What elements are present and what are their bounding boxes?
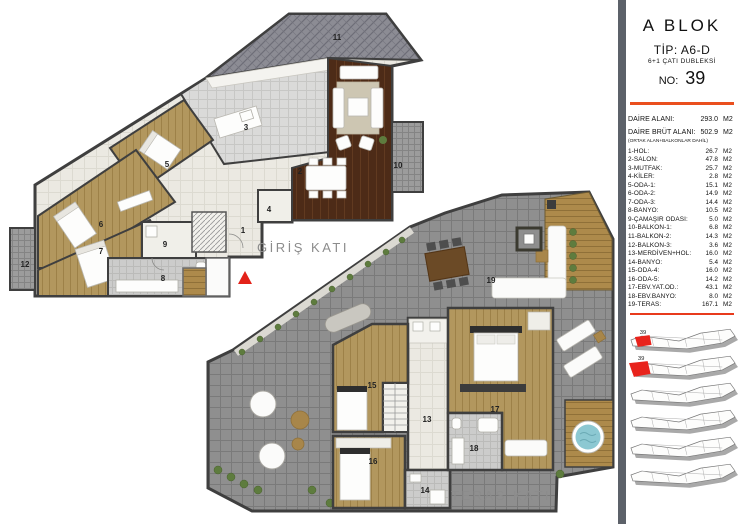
keyplan-thumbnail: [628, 381, 738, 407]
bath-vanity: [116, 280, 178, 292]
room-number-8: 8: [161, 274, 166, 283]
keyplan-thumbnail: [628, 462, 738, 488]
room-row: 9-ÇAMAŞIR ODASI:5.0M2: [628, 216, 736, 225]
l-sofa: [492, 278, 566, 298]
no-label: NO:: [659, 75, 679, 87]
area-label: DAİRE BRÜT ALANI:: [628, 126, 698, 139]
dining-set: [306, 158, 346, 198]
net-area-row: DAİRE ALANI: 293.0 M2: [628, 113, 736, 126]
area-label: DAİRE ALANI:: [628, 113, 698, 126]
room-number-10: 10: [394, 161, 403, 170]
room-number-12: 12: [21, 260, 30, 269]
ground-floor-plan: 1 2 3 4 5 6 7 8 9 10 11 12 GİRİŞ KATI: [10, 14, 423, 296]
room-row: 3-MUTFAK:25.7M2: [628, 165, 736, 174]
stairs: [383, 383, 408, 432]
sofa: [505, 440, 547, 456]
side-table: [536, 250, 548, 262]
room-row: 19-TERAS:167.1M2: [628, 301, 736, 310]
room-number-2: 2: [298, 167, 303, 176]
appliance: [430, 322, 440, 331]
room-number-13: 13: [423, 415, 432, 424]
room-number-18: 18: [470, 444, 479, 453]
room-row: 14-BANYO:5.4M2: [628, 259, 736, 268]
stairs: [192, 212, 226, 252]
room-balkon-1: [392, 122, 423, 192]
area-note: (ORTAK ALAN+BALKONLAR DAHİL): [628, 139, 736, 145]
floorplan-sheet: 1 2 3 4 5 6 7 8 9 10 11 12 GİRİŞ KATI: [0, 0, 740, 524]
room-row: 10-BALKON-1:6.8M2: [628, 224, 736, 233]
room-balkon-3: [10, 228, 35, 290]
room-row: 17-EBV.YAT.OD.:43.1M2: [628, 284, 736, 293]
panel-divider-strip: [618, 0, 626, 524]
room-kiler: [258, 190, 292, 222]
room-row: 11-BALKON-2:14.3M2: [628, 233, 736, 242]
room-number-4: 4: [267, 205, 272, 214]
room-row: 16-ODA-5:14.2M2: [628, 276, 736, 285]
room-number-15: 15: [368, 381, 377, 390]
area-value: 293.0: [698, 113, 718, 126]
room-row: 6-ODA-2:14.9M2: [628, 190, 736, 199]
room-row: 1-HOL:26.7M2: [628, 148, 736, 157]
room-number-5: 5: [165, 160, 170, 169]
wardrobe: [336, 438, 391, 448]
entry-steps: [183, 268, 206, 296]
room-row: 8-BANYO:10.5M2: [628, 207, 736, 216]
ground-floor-label: GİRİŞ KATI: [257, 240, 349, 255]
hot-tub: [572, 421, 604, 453]
room-number-6: 6: [99, 220, 104, 229]
entrance-arrow-icon: [238, 271, 252, 284]
sink: [410, 474, 421, 482]
unit-highlight: [635, 335, 652, 347]
area-value: 502.9: [698, 126, 718, 139]
keyplan-thumbnail-highlighted: 39: [628, 354, 738, 380]
unit-number: 39: [685, 68, 705, 89]
toilet: [452, 418, 461, 429]
room-number-9: 9: [163, 240, 168, 249]
room-number-1: 1: [241, 226, 246, 235]
entry-landing: [206, 258, 229, 296]
terrace-floor-label: TERAS KATI: [451, 488, 551, 503]
keyplan-unit-label: 39: [640, 330, 647, 336]
vanity: [452, 438, 464, 464]
room-row: 12-BALKON-3:3.6M2: [628, 242, 736, 251]
room-number-14: 14: [421, 486, 430, 495]
room-row: 5-ODA-1:15.1M2: [628, 182, 736, 191]
divider-rule-bottom: [630, 313, 734, 316]
room-number-19: 19: [487, 276, 496, 285]
keyplan-thumbnail: [628, 408, 738, 434]
room-area-table: 1-HOL:26.7M2 2-SALON:47.8M2 3-MUTFAK:25.…: [628, 148, 736, 310]
room-number-11: 11: [333, 33, 342, 42]
divider-rule-top: [630, 102, 734, 105]
type-label: TİP: A6-D: [628, 43, 736, 57]
shower: [430, 490, 445, 504]
gross-area-row: DAİRE BRÜT ALANI: 502.9 M2: [628, 126, 736, 139]
room-row: 18-EBV.BANYO:8.0M2: [628, 293, 736, 302]
keyplan-thumbnail-highlighted: 39: [628, 327, 738, 353]
room-number-16: 16: [369, 457, 378, 466]
bathtub: [478, 418, 498, 432]
room-row: 2-SALON:47.8M2: [628, 156, 736, 165]
fireplace: [547, 200, 556, 209]
appliance: [413, 322, 423, 331]
bed: [337, 386, 367, 430]
subtype-label: 6+1 ÇATI DUBLEKSİ: [628, 58, 736, 65]
area-unit: M2: [723, 113, 736, 126]
area-unit: M2: [723, 126, 736, 139]
washer: [146, 226, 157, 237]
fire-pit: [517, 228, 541, 250]
keyplan-thumbnail: [628, 435, 738, 461]
room-row: 15-ODA-4:16.0M2: [628, 267, 736, 276]
room-number-17: 17: [491, 405, 500, 414]
room-number-7: 7: [99, 247, 104, 256]
block-title: A BLOK: [628, 16, 736, 36]
wardrobe: [528, 312, 550, 330]
keyplan-unit-label: 39: [638, 357, 645, 363]
keyplan-column: 39 39: [628, 327, 736, 488]
floorplans-drawing: 1 2 3 4 5 6 7 8 9 10 11 12 GİRİŞ KATI: [0, 0, 620, 524]
info-panel: A BLOK TİP: A6-D 6+1 ÇATI DUBLEKSİ NO: 3…: [618, 0, 740, 524]
room-row: 4-KİLER:2.8M2: [628, 173, 736, 182]
unit-number-row: NO: 39: [628, 68, 736, 89]
room-row: 7-ODA-3:14.4M2: [628, 199, 736, 208]
room-number-3: 3: [244, 123, 249, 132]
bed: [340, 448, 370, 500]
room-row: 13-MERDİVEN+HOL:16.0M2: [628, 250, 736, 259]
